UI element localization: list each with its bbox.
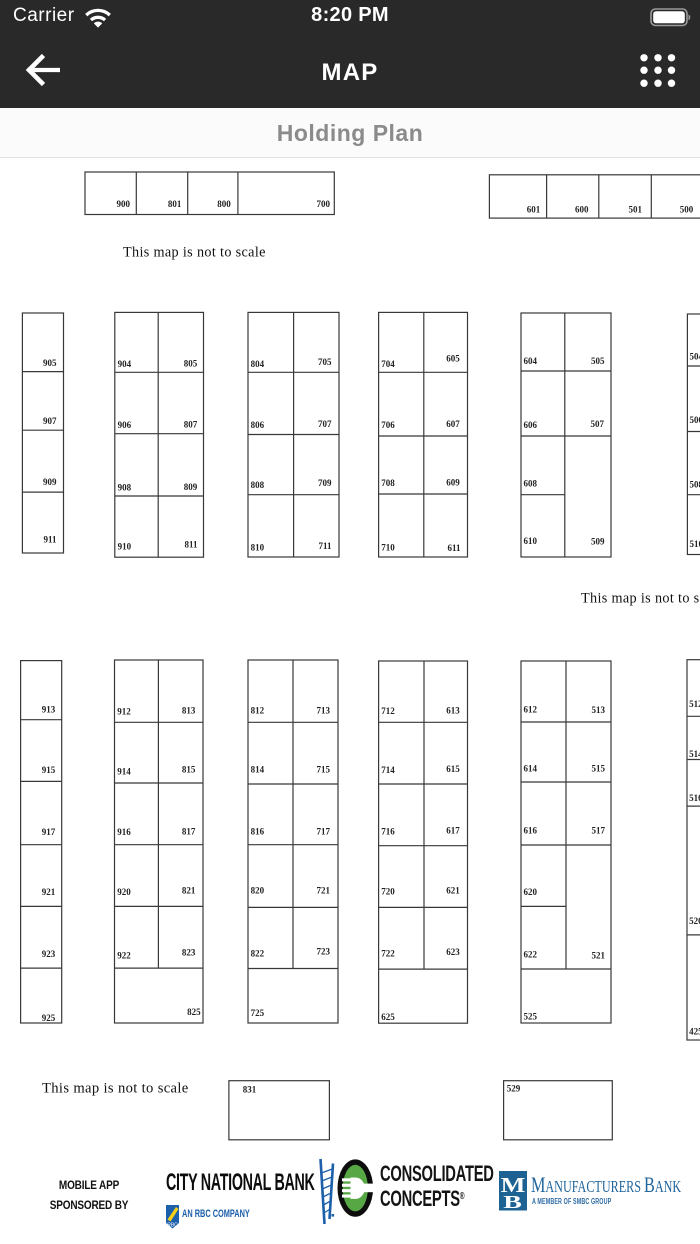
svg-text:907: 907 <box>43 416 57 426</box>
svg-text:809: 809 <box>184 482 198 492</box>
svg-text:715: 715 <box>317 765 331 775</box>
svg-text:915: 915 <box>42 765 56 775</box>
svg-text:922: 922 <box>117 950 131 960</box>
svg-text:607: 607 <box>446 419 460 429</box>
svg-text:This map is not to scale: This map is not to scale <box>123 245 266 261</box>
svg-text:900: 900 <box>117 199 131 209</box>
svg-text:506: 506 <box>690 415 700 425</box>
svg-text:704: 704 <box>381 359 395 369</box>
svg-text:805: 805 <box>184 359 198 369</box>
svg-text:912: 912 <box>117 707 131 717</box>
svg-text:808: 808 <box>251 480 265 490</box>
svg-text:B: B <box>503 1193 522 1211</box>
svg-text:810: 810 <box>251 543 265 553</box>
svg-text:914: 914 <box>117 767 131 777</box>
svg-text:909: 909 <box>43 477 57 487</box>
svg-text:709: 709 <box>318 478 332 488</box>
svg-text:811: 811 <box>184 539 198 549</box>
svg-text:712: 712 <box>381 706 395 716</box>
svg-text:711: 711 <box>318 541 332 551</box>
svg-text:820: 820 <box>251 886 265 896</box>
svg-text:514: 514 <box>689 749 700 759</box>
svg-text:604: 604 <box>524 356 538 366</box>
svg-text:806: 806 <box>251 420 265 430</box>
svg-text:823: 823 <box>182 948 196 958</box>
svg-text:720: 720 <box>381 887 395 897</box>
svg-text:529: 529 <box>507 1083 521 1093</box>
svg-text:425: 425 <box>689 1027 700 1037</box>
svg-text:512: 512 <box>689 699 700 709</box>
svg-text:717: 717 <box>317 827 331 837</box>
svg-text:723: 723 <box>317 947 331 957</box>
svg-text:817: 817 <box>182 827 196 837</box>
svg-text:816: 816 <box>251 827 265 837</box>
svg-text:815: 815 <box>182 765 196 775</box>
svg-text:910: 910 <box>118 541 132 551</box>
svg-text:825: 825 <box>187 1007 201 1017</box>
svg-text:513: 513 <box>592 705 606 715</box>
svg-text:610: 610 <box>524 536 538 546</box>
svg-text:601: 601 <box>527 205 541 215</box>
svg-text:814: 814 <box>251 765 265 775</box>
svg-text:625: 625 <box>381 1012 395 1022</box>
svg-text:916: 916 <box>117 827 131 837</box>
svg-text:507: 507 <box>591 419 605 429</box>
svg-text:911: 911 <box>43 535 57 545</box>
svg-text:517: 517 <box>592 826 606 836</box>
svg-text:714: 714 <box>381 765 395 775</box>
svg-text:812: 812 <box>251 706 265 716</box>
svg-text:521: 521 <box>592 951 606 961</box>
svg-text:706: 706 <box>381 420 395 430</box>
svg-text:721: 721 <box>317 886 331 896</box>
svg-text:821: 821 <box>182 886 196 896</box>
svg-text:501: 501 <box>629 205 643 215</box>
svg-text:505: 505 <box>591 356 605 366</box>
svg-text:520: 520 <box>689 916 700 926</box>
svg-text:923: 923 <box>42 949 56 959</box>
svg-text:917: 917 <box>42 827 56 837</box>
svg-text:612: 612 <box>524 705 538 715</box>
svg-text:725: 725 <box>251 1008 265 1018</box>
svg-text:807: 807 <box>184 420 198 430</box>
svg-text:623: 623 <box>446 947 460 957</box>
svg-text:600: 600 <box>575 205 589 215</box>
svg-text:700: 700 <box>317 199 331 209</box>
svg-text:713: 713 <box>317 706 331 716</box>
svg-text:908: 908 <box>118 482 132 492</box>
svg-text:913: 913 <box>42 705 56 715</box>
svg-text:920: 920 <box>117 887 131 897</box>
svg-text:616: 616 <box>524 826 538 836</box>
svg-text:710: 710 <box>381 543 395 553</box>
svg-text:504: 504 <box>690 352 700 362</box>
svg-text:620: 620 <box>524 887 538 897</box>
svg-text:622: 622 <box>524 950 538 960</box>
svg-text:RBC: RBC <box>167 1223 178 1229</box>
svg-text:This map is not to scale: This map is not to scale <box>42 1081 189 1097</box>
svg-text:605: 605 <box>446 354 460 364</box>
svg-text:515: 515 <box>592 764 606 774</box>
svg-text:613: 613 <box>446 706 460 716</box>
svg-text:508: 508 <box>690 480 700 490</box>
svg-text:525: 525 <box>524 1012 538 1022</box>
svg-text:800: 800 <box>217 199 231 209</box>
svg-text:615: 615 <box>446 764 460 774</box>
svg-text:722: 722 <box>381 949 395 959</box>
svg-text:905: 905 <box>43 358 57 368</box>
svg-text:621: 621 <box>446 886 460 896</box>
svg-text:609: 609 <box>446 478 460 488</box>
svg-text:This map is not to scale: This map is not to scale <box>581 591 700 607</box>
svg-text:516: 516 <box>689 793 700 803</box>
svg-text:500: 500 <box>680 205 694 215</box>
svg-text:813: 813 <box>182 706 196 716</box>
svg-text:617: 617 <box>446 826 460 836</box>
svg-text:614: 614 <box>524 764 538 774</box>
svg-text:510: 510 <box>690 539 700 549</box>
svg-text:705: 705 <box>318 357 332 367</box>
svg-text:716: 716 <box>381 827 395 837</box>
svg-text:804: 804 <box>251 359 265 369</box>
svg-text:608: 608 <box>524 479 538 489</box>
svg-text:925: 925 <box>42 1013 56 1023</box>
svg-text:831: 831 <box>243 1085 257 1095</box>
svg-text:707: 707 <box>318 419 332 429</box>
svg-text:509: 509 <box>591 537 605 547</box>
svg-text:921: 921 <box>42 887 56 897</box>
svg-text:606: 606 <box>524 420 538 430</box>
svg-text:801: 801 <box>168 199 182 209</box>
svg-text:906: 906 <box>118 420 132 430</box>
svg-text:708: 708 <box>381 478 395 488</box>
svg-text:611: 611 <box>447 543 461 553</box>
svg-text:904: 904 <box>118 359 132 369</box>
svg-text:822: 822 <box>251 949 265 959</box>
